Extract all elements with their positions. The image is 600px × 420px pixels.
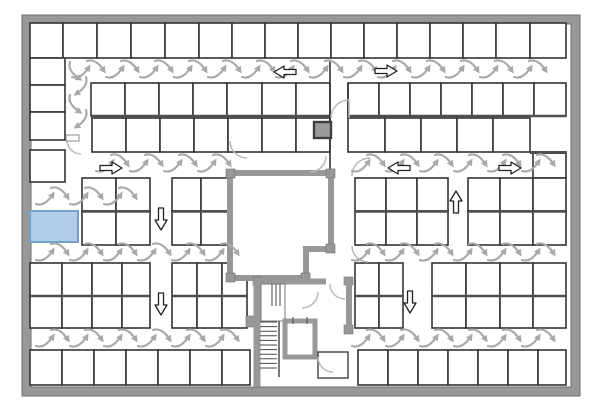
parking-stall[interactable] — [364, 23, 397, 58]
parking-stall[interactable] — [538, 350, 566, 385]
parking-stall[interactable] — [508, 350, 538, 385]
parking-stall[interactable] — [92, 296, 122, 328]
parking-stall[interactable] — [472, 83, 503, 116]
parking-stall[interactable] — [355, 263, 379, 296]
parking-stall[interactable] — [493, 118, 530, 152]
selected-stall[interactable] — [30, 211, 78, 242]
wall-pilaster — [226, 169, 235, 178]
parking-stall[interactable] — [62, 263, 92, 296]
parking-stall[interactable] — [500, 263, 533, 296]
parking-stall[interactable] — [397, 23, 430, 58]
parking-stall[interactable] — [468, 178, 500, 211]
parking-stall[interactable] — [448, 350, 478, 385]
parking-stall[interactable] — [379, 263, 403, 296]
wall-pilaster — [326, 244, 335, 253]
parking-stall[interactable] — [159, 83, 193, 116]
parking-stall[interactable] — [500, 211, 533, 245]
parking-stall[interactable] — [355, 211, 386, 245]
parking-stall[interactable] — [30, 150, 65, 182]
parking-stall[interactable] — [197, 296, 222, 328]
parking-stall[interactable] — [441, 83, 472, 116]
parking-stall[interactable] — [331, 23, 364, 58]
parking-stall[interactable] — [172, 263, 197, 296]
parking-stall[interactable] — [379, 296, 403, 328]
parking-stall[interactable] — [496, 23, 530, 58]
shaft-column — [314, 122, 331, 138]
parking-stall[interactable] — [122, 296, 150, 328]
parking-stall[interactable] — [417, 211, 448, 245]
parking-stall[interactable] — [125, 83, 159, 116]
parking-stall[interactable] — [421, 118, 457, 152]
parking-stall[interactable] — [379, 83, 410, 116]
parking-stall[interactable] — [30, 23, 63, 58]
parking-stall[interactable] — [478, 350, 508, 385]
parking-stall[interactable] — [222, 296, 247, 328]
parking-stall[interactable] — [533, 211, 566, 245]
parking-stall[interactable] — [30, 263, 62, 296]
parking-stall[interactable] — [530, 23, 566, 58]
parking-stall[interactable] — [463, 23, 496, 58]
parking-stall[interactable] — [92, 118, 126, 152]
parking-stall[interactable] — [92, 263, 122, 296]
parking-stall[interactable] — [201, 178, 230, 211]
parking-stall[interactable] — [348, 118, 385, 152]
parking-stall[interactable] — [172, 296, 197, 328]
parking-stall[interactable] — [500, 178, 533, 211]
parking-stall[interactable] — [30, 350, 62, 385]
parking-stall[interactable] — [201, 211, 230, 245]
parking-stall[interactable] — [468, 211, 500, 245]
parking-stall[interactable] — [262, 83, 296, 116]
parking-stall[interactable] — [533, 263, 566, 296]
parking-stall[interactable] — [193, 83, 227, 116]
parking-stall[interactable] — [533, 178, 566, 211]
utility-room — [318, 352, 348, 378]
parking-stall[interactable] — [158, 350, 190, 385]
parking-stall[interactable] — [348, 83, 379, 116]
parking-stall[interactable] — [199, 23, 232, 58]
wall-pilaster — [326, 169, 335, 178]
parking-stall[interactable] — [296, 83, 330, 116]
parking-stall[interactable] — [116, 211, 150, 245]
parking-stall[interactable] — [126, 118, 160, 152]
parking-stall[interactable] — [386, 211, 417, 245]
parking-stall[interactable] — [62, 350, 94, 385]
parking-stall[interactable] — [30, 85, 65, 112]
parking-stall[interactable] — [355, 296, 379, 328]
parking-stall[interactable] — [172, 178, 201, 211]
parking-stall[interactable] — [355, 178, 386, 211]
parking-stall[interactable] — [131, 23, 165, 58]
parking-stall[interactable] — [385, 118, 421, 152]
parking-stall[interactable] — [197, 263, 222, 296]
parking-stall[interactable] — [30, 112, 65, 140]
parking-stall[interactable] — [503, 83, 534, 116]
parking-stall[interactable] — [227, 83, 262, 116]
parking-stall[interactable] — [165, 23, 199, 58]
parking-stall[interactable] — [388, 350, 418, 385]
parking-stall[interactable] — [410, 83, 441, 116]
parking-stall[interactable] — [432, 263, 466, 296]
parking-stall[interactable] — [30, 296, 62, 328]
parking-stall[interactable] — [533, 152, 566, 178]
parking-stall[interactable] — [172, 211, 201, 245]
parking-stall[interactable] — [160, 118, 194, 152]
parking-stall[interactable] — [194, 118, 228, 152]
elevator-shaft — [285, 321, 315, 357]
parking-stall[interactable] — [358, 350, 388, 385]
parking-stall[interactable] — [432, 296, 466, 328]
parking-stall[interactable] — [97, 23, 131, 58]
parking-garage-floor-plan — [0, 0, 600, 420]
parking-stall[interactable] — [91, 83, 125, 116]
parking-stall[interactable] — [500, 296, 533, 328]
parking-stall[interactable] — [534, 83, 566, 116]
parking-stall[interactable] — [63, 23, 97, 58]
wall-pilaster — [226, 273, 235, 282]
parking-stall[interactable] — [457, 118, 493, 152]
parking-stall[interactable] — [466, 296, 500, 328]
parking-stall[interactable] — [190, 350, 222, 385]
parking-stall[interactable] — [265, 23, 298, 58]
parking-stall[interactable] — [466, 263, 500, 296]
parking-stall[interactable] — [228, 118, 262, 152]
parking-stall[interactable] — [126, 350, 158, 385]
parking-stall[interactable] — [122, 263, 150, 296]
parking-stall[interactable] — [222, 350, 250, 385]
parking-stall[interactable] — [417, 178, 448, 211]
parking-stall[interactable] — [533, 296, 566, 328]
parking-stall[interactable] — [418, 350, 448, 385]
parking-stall[interactable] — [232, 23, 265, 58]
parking-stall[interactable] — [430, 23, 463, 58]
parking-stall[interactable] — [82, 211, 116, 245]
parking-stall[interactable] — [94, 350, 126, 385]
parking-stall[interactable] — [262, 118, 296, 152]
door-leaf — [66, 135, 79, 141]
parking-stall[interactable] — [30, 58, 65, 85]
wall-pilaster — [246, 316, 254, 327]
floor-plan-canvas — [0, 0, 600, 420]
parking-stall[interactable] — [298, 23, 331, 58]
parking-stall[interactable] — [386, 178, 417, 211]
parking-stall[interactable] — [62, 296, 92, 328]
